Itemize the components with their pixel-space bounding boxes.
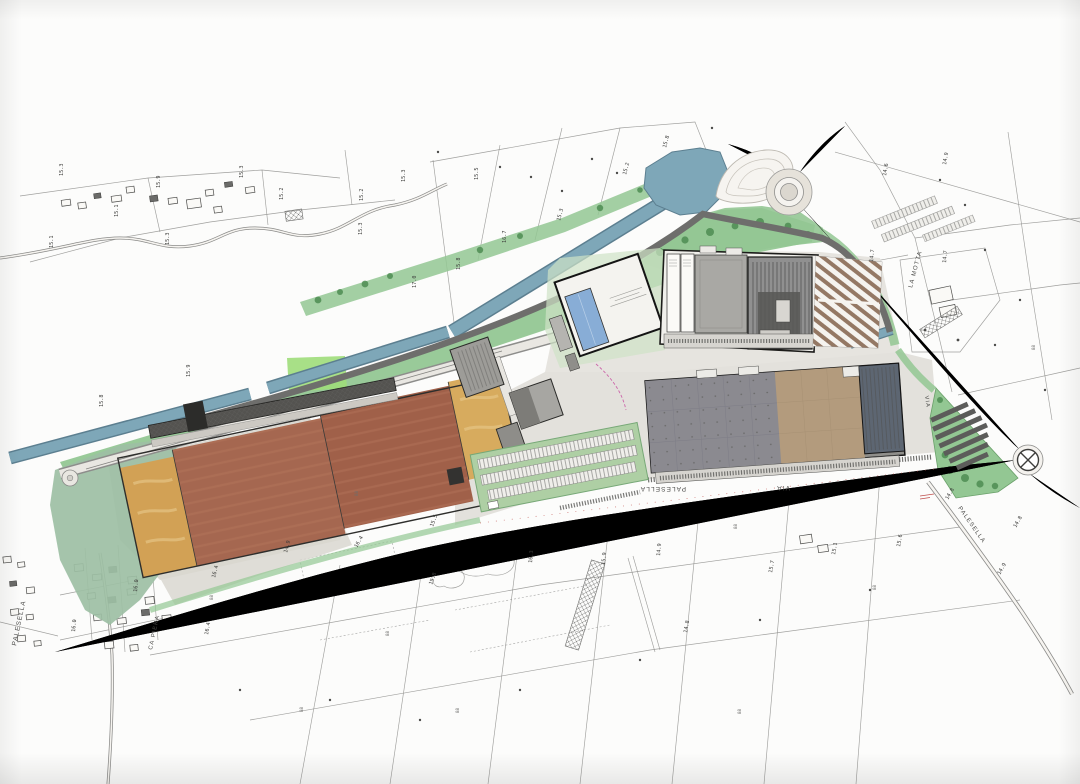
parcel-mark-label: 88 xyxy=(299,706,304,712)
spot-elevation-label: 16.0 xyxy=(71,619,78,632)
spot-elevation-label: 15.3 xyxy=(59,164,65,177)
spot-elevation-label: 16.0 xyxy=(133,579,140,592)
retention-pond xyxy=(644,148,728,215)
spot-elevation-label: 15.9 xyxy=(186,365,192,378)
street-name-label: LA MOTTA xyxy=(908,250,924,288)
spot-elevation-label: 14.9 xyxy=(656,543,663,556)
spot-elevation-label: 15.9 xyxy=(156,176,162,189)
spot-elevation-label: 14.9 xyxy=(942,152,950,165)
spot-elevation-label: 14.9 xyxy=(997,562,1008,576)
street-name-label: VIA xyxy=(776,484,790,491)
parcel-mark-label: 88 xyxy=(737,708,742,714)
spot-elevation-label: 16.4 xyxy=(204,622,212,635)
la-motta-farm xyxy=(920,286,963,342)
red-annotation-mark xyxy=(920,494,934,499)
spot-elevation-label: 15.8 xyxy=(99,395,105,408)
spot-elevation-label: 15.8 xyxy=(456,258,462,271)
spot-elevation-label: 17.0 xyxy=(412,276,418,289)
parcel-mark-label: 88 xyxy=(733,523,738,529)
roundabout-west-small xyxy=(62,470,78,486)
spot-elevation-label: 15.2 xyxy=(359,189,365,202)
spot-elevation-label: 14.7 xyxy=(869,249,876,262)
street-name-label: PALESELLA xyxy=(640,485,686,492)
parcel-mark-label: 88 xyxy=(209,594,214,600)
spot-elevation-label: 14.7 xyxy=(942,250,949,263)
roundabout-north xyxy=(766,169,812,215)
spot-elevation-label: 15.6 xyxy=(896,534,904,547)
spot-elevation-label: 14.8 xyxy=(683,620,691,633)
old-road xyxy=(0,184,447,258)
spot-elevation-label: 15.9 xyxy=(601,552,608,565)
spot-elevation-label: 15.5 xyxy=(474,168,480,181)
upper-industrial-complex xyxy=(660,246,818,352)
spot-elevation-label: 15.1 xyxy=(831,542,839,555)
parcel-mark-label: 88 xyxy=(385,630,390,636)
parcel-mark-label: 88 xyxy=(354,490,359,496)
northeast-brown-parking xyxy=(813,256,882,348)
parcel-mark-label: 88 xyxy=(455,707,460,713)
cadastral-details-south xyxy=(300,534,829,652)
spot-elevation-label: 15.8 xyxy=(662,135,671,149)
small-utility-building xyxy=(447,467,465,486)
spot-elevation-label: 15.3 xyxy=(401,170,407,183)
parcel-mark-label: 88 xyxy=(872,584,877,590)
spot-elevation-label: 15.3 xyxy=(358,223,364,236)
warehouse-tan-roof xyxy=(775,366,865,464)
roundabout-east-planned xyxy=(1013,445,1043,475)
spot-elevation-label: 15.2 xyxy=(279,188,285,201)
spot-elevation-label: 15.1 xyxy=(114,205,120,218)
road-palesella-se xyxy=(928,482,1072,694)
spot-elevation-label: 14.6 xyxy=(882,163,890,176)
north-parking-rows xyxy=(872,185,976,257)
spot-elevation-label: 16.7 xyxy=(502,231,508,244)
spot-elevation-label: 15.2 xyxy=(622,162,631,176)
spot-elevation-label: 15.3 xyxy=(165,233,171,246)
spot-elevation-label: 15.7 xyxy=(768,560,776,573)
scanned-site-plan-photo: PALESELLACA PIERAPALESELLAVIAVIAPALESELL… xyxy=(0,0,1080,784)
site-plan-drawing: PALESELLACA PIERAPALESELLAVIAVIAPALESELL… xyxy=(0,0,1080,784)
parcel-mark-label: 88 xyxy=(1031,344,1036,350)
spot-elevation-label: 15.3 xyxy=(239,166,245,179)
spot-elevation-label: 15.1 xyxy=(49,236,55,249)
spot-elevation-label: 14.8 xyxy=(1013,515,1024,529)
spot-elevation-label: 16.3 xyxy=(528,550,535,563)
